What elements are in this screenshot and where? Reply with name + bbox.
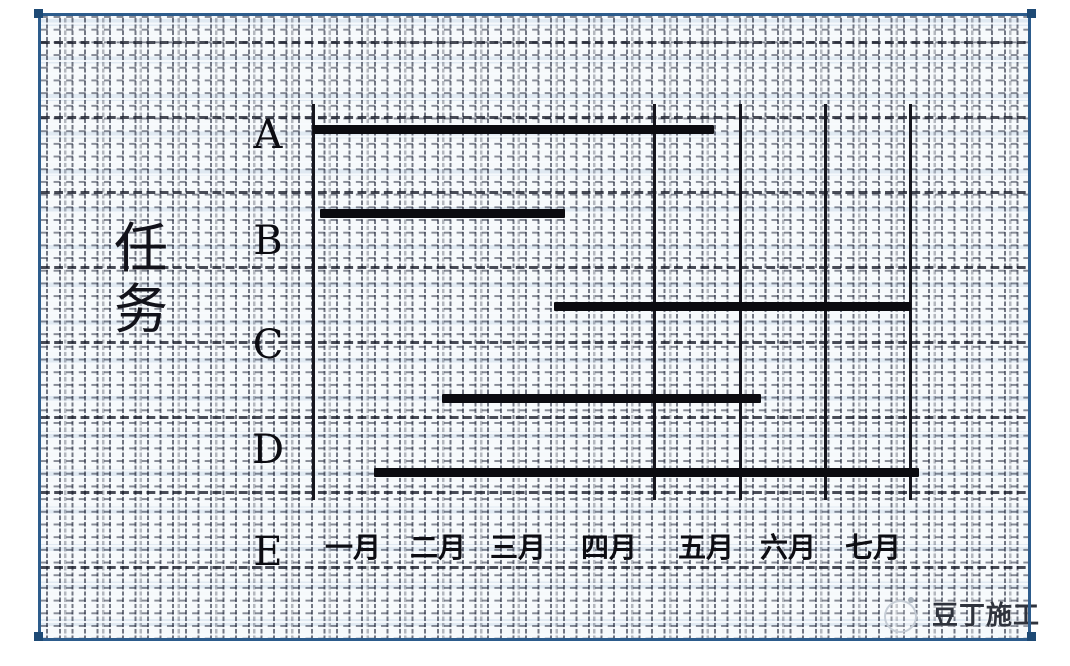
scanned-gantt-chart: ABCDE一月二月三月四月五月六月七月 任务 豆丁施工	[0, 0, 1070, 666]
gantt-bar-a	[313, 125, 714, 134]
watermark-text: 豆丁施工	[932, 602, 1040, 630]
docin-logo-icon	[884, 600, 917, 633]
y-axis-title: 任务	[112, 218, 170, 340]
month-label-3: 三月	[476, 532, 560, 564]
month-label-5: 五月	[664, 532, 748, 564]
month-label-6: 六月	[746, 532, 830, 564]
row-label-b: B	[244, 219, 292, 263]
corner-handle-bottom-left	[34, 632, 43, 641]
watermark: 豆丁施工	[882, 596, 1032, 638]
row-label-c: C	[244, 323, 292, 367]
row-label-a: A	[244, 113, 292, 157]
gantt-bar-b	[320, 209, 565, 218]
corner-handle-top-left	[34, 9, 43, 18]
y-axis-line	[312, 104, 315, 500]
gantt-bar-c	[554, 302, 911, 311]
month-label-7: 七月	[831, 532, 915, 564]
month-label-1: 一月	[311, 532, 395, 564]
row-label-d: D	[244, 428, 292, 472]
month-label-4: 四月	[567, 532, 651, 564]
month-label-2: 二月	[396, 532, 480, 564]
gantt-bar-e	[374, 468, 919, 477]
gantt-bar-d	[442, 394, 761, 403]
corner-handle-top-right	[1027, 9, 1036, 18]
docin-logo-dot-icon	[908, 597, 914, 603]
corner-handle-bottom-right	[1027, 632, 1036, 641]
row-label-e: E	[244, 530, 292, 574]
